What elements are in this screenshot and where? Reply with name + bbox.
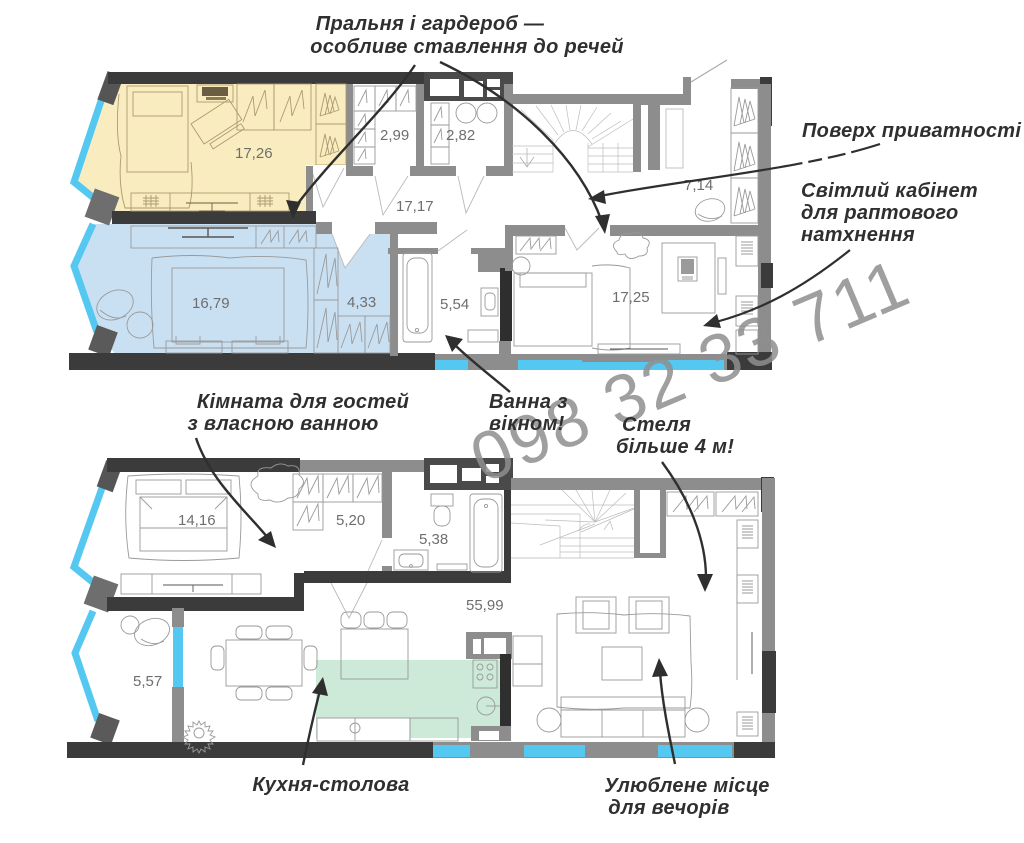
svg-text:17,17: 17,17 xyxy=(396,198,434,215)
svg-text:Улюблене місце: Улюблене місце xyxy=(604,775,769,797)
svg-text:Кімната для гостей: Кімната для гостей xyxy=(197,391,409,413)
svg-text:Пральня і гардероб —: Пральня і гардероб — xyxy=(316,13,545,35)
svg-text:особливе ставлення до речей: особливе ставлення до речей xyxy=(310,36,624,58)
svg-text:2,82: 2,82 xyxy=(446,127,475,144)
svg-text:більше 4 м!: більше 4 м! xyxy=(616,436,734,458)
svg-text:для раптового: для раптового xyxy=(801,202,959,224)
svg-text:17,26: 17,26 xyxy=(235,145,273,162)
svg-text:5,54: 5,54 xyxy=(440,296,469,313)
svg-text:14,16: 14,16 xyxy=(178,512,216,529)
svg-text:з власною ванною: з власною ванною xyxy=(187,413,378,435)
svg-text:5,57: 5,57 xyxy=(133,673,162,690)
svg-text:2,99: 2,99 xyxy=(380,127,409,144)
svg-text:Поверх приватності: Поверх приватності xyxy=(802,120,1021,142)
svg-text:Кухня-столова: Кухня-столова xyxy=(252,774,409,796)
svg-text:Світлий кабінет: Світлий кабінет xyxy=(801,180,978,202)
svg-text:16,79: 16,79 xyxy=(192,295,230,312)
svg-text:5,38: 5,38 xyxy=(419,531,448,548)
svg-text:55,99: 55,99 xyxy=(466,597,504,614)
svg-text:17,25: 17,25 xyxy=(612,289,650,306)
svg-text:5,20: 5,20 xyxy=(336,512,365,529)
svg-text:натхнення: натхнення xyxy=(801,224,915,246)
svg-text:вікном!: вікном! xyxy=(489,413,565,435)
svg-text:4,33: 4,33 xyxy=(347,294,376,311)
svg-text:Стеля: Стеля xyxy=(622,414,691,436)
svg-text:для вечорів: для вечорів xyxy=(608,797,729,819)
svg-text:Ванна з: Ванна з xyxy=(489,391,568,413)
